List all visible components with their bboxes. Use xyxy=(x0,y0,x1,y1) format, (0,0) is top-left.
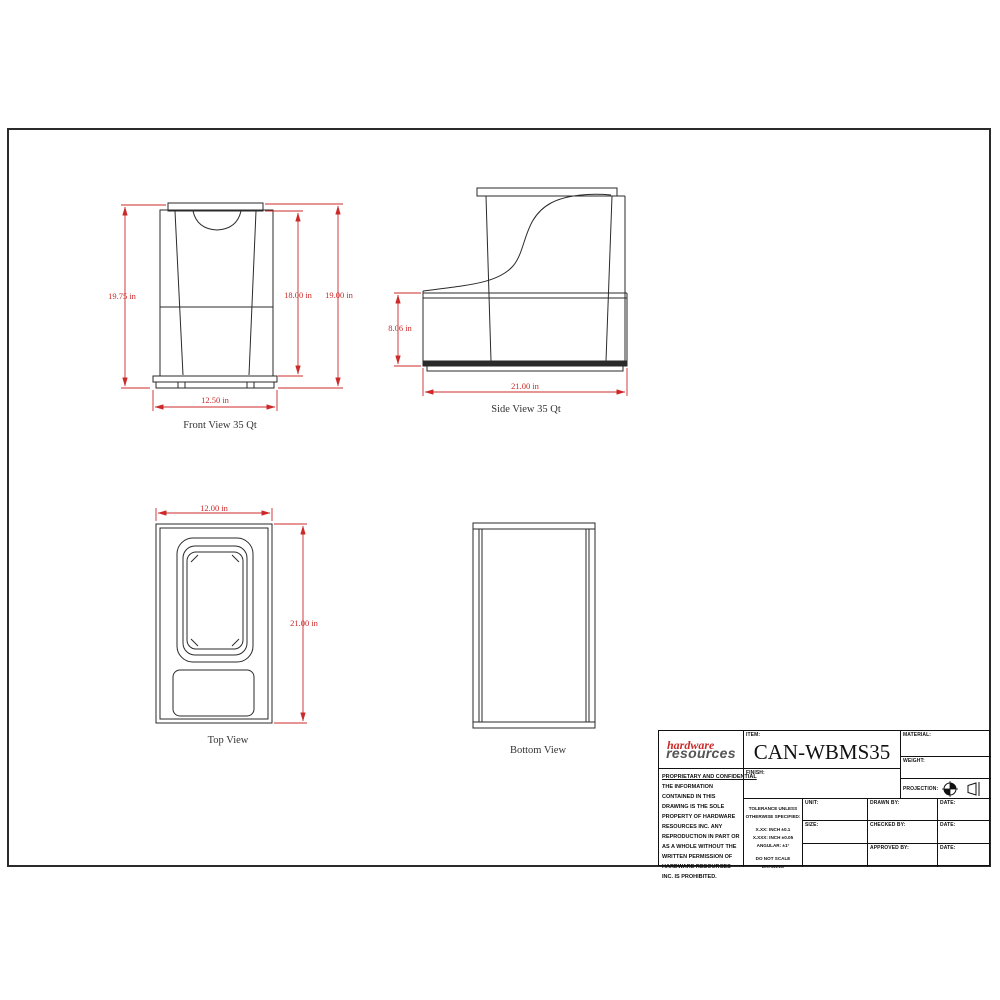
lid-notch xyxy=(193,211,241,230)
side-profile-curve xyxy=(423,194,611,291)
unit-cell: UNIT: xyxy=(803,799,868,821)
side-dim-frame-height: 8.06 in xyxy=(388,323,412,333)
tolerance-line-3: X.XX: INCH ±0.1 xyxy=(744,826,802,834)
top-dim-depth: 21.00 in xyxy=(290,618,319,628)
base-tier-1 xyxy=(153,376,277,382)
front-view-outline xyxy=(153,203,277,388)
date-cell-2: DATE: xyxy=(938,821,990,844)
side-view-outline xyxy=(423,188,627,371)
checked-by-label: CHECKED BY: xyxy=(868,821,937,828)
item-number: CAN-WBMS35 xyxy=(744,731,900,765)
tolerance-line-6: DO NOT SCALE DRAWING xyxy=(744,855,802,871)
tolerance-line-4: X.XXX: INCH ±0.05 xyxy=(744,834,802,842)
item-cell: ITEM: CAN-WBMS35 xyxy=(744,731,901,769)
tolerance-line-2: OTHERWISE SPECIFIED: xyxy=(744,813,802,821)
front-dim-width: 12.50 in xyxy=(201,395,230,405)
projection-cell: PROJECTION: xyxy=(901,779,991,799)
date-cell-3: DATE: xyxy=(938,844,990,867)
date-label-2: DATE: xyxy=(938,821,990,828)
opening-inner xyxy=(187,552,243,649)
side-base-bar xyxy=(423,361,627,366)
item-label: ITEM: xyxy=(744,731,760,738)
tolerance-cell: TOLERANCE UNLESS OTHERWISE SPECIFIED: X.… xyxy=(744,799,803,867)
weight-label: WEIGHT: xyxy=(901,757,991,764)
date-label-1: DATE: xyxy=(938,799,990,806)
top-view: 12.00 in 21.00 in Top View xyxy=(156,503,319,746)
top-view-label: Top View xyxy=(208,735,249,746)
size-cell: SIZE: xyxy=(803,821,868,844)
proprietary-cell: PROPRIETARY AND CONFIDENTIAL THE INFORMA… xyxy=(659,769,744,867)
base-tier-2 xyxy=(156,382,274,388)
side-lid xyxy=(477,188,617,196)
projection-label: PROJECTION: xyxy=(901,785,938,792)
tolerance-line-5: ANGULAR: ±1° xyxy=(744,842,802,850)
bottom-view-label: Bottom View xyxy=(510,745,566,756)
proprietary-title: PROPRIETARY AND CONFIDENTIAL xyxy=(662,772,741,782)
unit-label: UNIT: xyxy=(803,799,867,806)
bottom-view-outline xyxy=(473,523,595,728)
side-base-foot xyxy=(427,366,623,371)
finish-cell: FINISH: xyxy=(744,769,901,799)
drawn-by-cell: DRAWN BY: xyxy=(868,799,938,821)
approved-by-label: APPROVED BY: xyxy=(868,844,937,851)
side-view-label: Side View 35 Qt xyxy=(491,404,561,415)
finish-label: FINISH: xyxy=(744,769,900,776)
drawn-by-label: DRAWN BY: xyxy=(868,799,937,806)
top-tray xyxy=(173,670,254,716)
front-dim-inner-height: 18.00 in xyxy=(284,290,313,300)
approved-by-cell: APPROVED BY: xyxy=(868,844,938,867)
date-label-3: DATE: xyxy=(938,844,990,851)
side-dim-depth: 21.00 in xyxy=(511,381,540,391)
top-dim-width: 12.00 in xyxy=(200,503,229,513)
size-label: SIZE: xyxy=(803,821,867,828)
weight-cell: WEIGHT: xyxy=(901,757,991,779)
logo-cell: hardware resources xyxy=(659,731,744,769)
material-cell: MATERIAL: xyxy=(901,731,991,757)
bottom-view: Bottom View xyxy=(473,523,595,756)
title-block: hardware resources PROPRIETARY AND CONFI… xyxy=(658,730,990,866)
side-view: 8.06 in 21.00 in Side View 35 Qt xyxy=(388,188,627,415)
front-view: 19.75 in 18.00 in 19.00 in 12.50 in Fron… xyxy=(108,203,354,431)
date-cell-1: DATE: xyxy=(938,799,990,821)
third-angle-projection-icon xyxy=(940,780,986,798)
opening-mid xyxy=(183,546,247,655)
top-view-outline xyxy=(156,524,272,723)
checked-by-cell: CHECKED BY: xyxy=(868,821,938,844)
front-dim-overall-height: 19.00 in xyxy=(325,290,354,300)
top-view-dimensions xyxy=(156,508,307,723)
tolerance-line-1: TOLERANCE UNLESS xyxy=(744,805,802,813)
front-view-label: Front View 35 Qt xyxy=(183,420,257,431)
front-dim-height: 19.75 in xyxy=(108,291,137,301)
hardware-resources-logo: hardware resources xyxy=(659,731,743,768)
proprietary-body: THE INFORMATION CONTAINED IN THIS DRAWIN… xyxy=(662,782,741,882)
drawing-sheet: 19.75 in 18.00 in 19.00 in 12.50 in Fron… xyxy=(0,0,1000,1000)
empty-cell xyxy=(803,844,868,867)
logo-word-resources: resources xyxy=(666,746,736,760)
material-label: MATERIAL: xyxy=(901,731,991,738)
